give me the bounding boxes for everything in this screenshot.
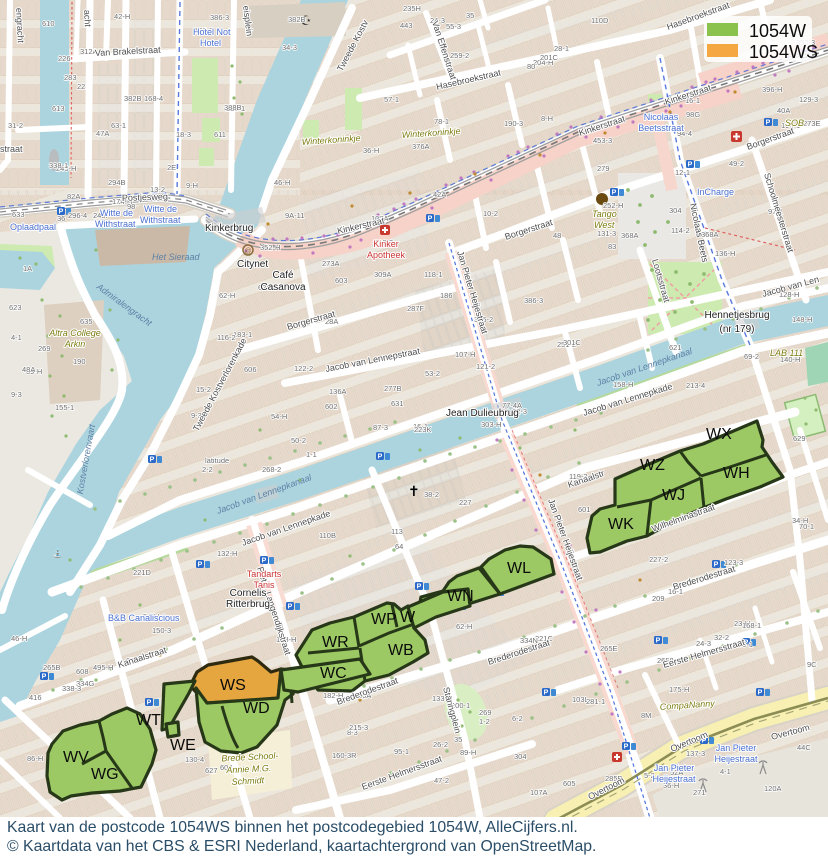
- svg-text:Schmidt: Schmidt: [231, 775, 264, 787]
- svg-text:155-1: 155-1: [55, 403, 74, 412]
- svg-text:WX: WX: [706, 426, 732, 443]
- svg-text:271: 271: [693, 788, 706, 797]
- svg-text:120A: 120A: [764, 784, 782, 793]
- svg-text:107-H: 107-H: [455, 350, 475, 359]
- svg-text:Altra College: Altra College: [48, 328, 101, 338]
- svg-text:279: 279: [597, 164, 610, 173]
- svg-text:627: 627: [205, 766, 218, 775]
- svg-text:Hotel Not: Hotel Not: [193, 27, 231, 37]
- svg-text:168-1: 168-1: [742, 621, 761, 630]
- svg-text:223K: 223K: [414, 425, 432, 434]
- svg-text:190: 190: [73, 357, 86, 366]
- svg-text:34-H: 34-H: [792, 516, 808, 525]
- svg-text:132-H: 132-H: [217, 549, 237, 558]
- svg-text:62-H: 62-H: [456, 622, 472, 631]
- svg-text:82A: 82A: [67, 192, 80, 201]
- svg-text:269: 269: [479, 708, 492, 717]
- svg-text:31-2: 31-2: [8, 121, 23, 130]
- svg-text:98G: 98G: [686, 110, 700, 119]
- svg-text:9A-11: 9A-11: [285, 211, 304, 220]
- svg-text:engracht: engracht: [14, 8, 26, 44]
- svg-text:150-3: 150-3: [152, 626, 171, 635]
- svg-text:Postjesweg: Postjesweg: [122, 191, 168, 203]
- svg-text:227-2: 227-2: [649, 555, 668, 564]
- svg-text:35: 35: [454, 735, 462, 744]
- svg-text:Witte de: Witte de: [144, 204, 177, 214]
- svg-text:396-H: 396-H: [762, 85, 782, 94]
- svg-text:1054WS: 1054WS: [749, 42, 818, 62]
- svg-text:P: P: [656, 638, 661, 645]
- svg-text:53-2: 53-2: [425, 369, 440, 378]
- svg-text:✝: ✝: [408, 483, 420, 499]
- svg-text:4-1: 4-1: [11, 333, 22, 342]
- svg-text:136A: 136A: [329, 387, 347, 396]
- svg-text:Het Sieraad: Het Sieraad: [152, 252, 201, 262]
- svg-text:186: 186: [440, 291, 453, 300]
- svg-text:12-1: 12-1: [675, 168, 690, 177]
- svg-text:P: P: [147, 700, 152, 707]
- svg-text:(nr 179): (nr 179): [719, 324, 754, 335]
- svg-text:601: 601: [578, 505, 591, 514]
- svg-text:57-1: 57-1: [384, 95, 399, 104]
- svg-text:47-2: 47-2: [434, 776, 449, 785]
- svg-text:296-4: 296-4: [68, 211, 87, 220]
- svg-text:W: W: [400, 609, 416, 626]
- svg-text:P: P: [42, 674, 47, 681]
- svg-text:P: P: [624, 744, 629, 751]
- svg-text:87-3: 87-3: [373, 423, 388, 432]
- svg-text:89-H: 89-H: [460, 748, 476, 757]
- svg-text:168-4: 168-4: [144, 94, 163, 103]
- svg-text:Tandarts: Tandarts: [247, 569, 282, 579]
- svg-text:WG: WG: [91, 766, 119, 783]
- svg-text:215-3: 215-3: [349, 723, 368, 732]
- svg-text:West: West: [594, 220, 615, 230]
- svg-text:WP: WP: [371, 611, 397, 628]
- svg-text:388B: 388B: [224, 103, 242, 112]
- svg-text:4-1: 4-1: [720, 767, 731, 776]
- svg-text:32-2: 32-2: [714, 633, 729, 642]
- svg-text:38-2: 38-2: [424, 490, 439, 499]
- svg-text:62-H: 62-H: [219, 291, 235, 300]
- svg-text:LAB 111: LAB 111: [770, 348, 803, 358]
- svg-text:55-3: 55-3: [446, 22, 461, 31]
- svg-text:Withstraat: Withstraat: [140, 215, 181, 225]
- svg-text:Citynet: Citynet: [237, 259, 268, 270]
- svg-text:straat: straat: [0, 144, 23, 154]
- svg-text:36: 36: [57, 214, 65, 223]
- svg-text:P: P: [417, 584, 422, 591]
- svg-text:301C: 301C: [563, 338, 582, 347]
- svg-text:63-1: 63-1: [111, 121, 126, 130]
- svg-text:Witte de: Witte de: [100, 208, 133, 218]
- svg-text:Jan Pieter: Jan Pieter: [654, 763, 695, 773]
- svg-text:114-2: 114-2: [671, 226, 690, 235]
- svg-text:265B: 265B: [43, 663, 61, 672]
- svg-text:Hennetjesbrug: Hennetjesbrug: [704, 310, 769, 321]
- svg-text:603: 603: [335, 276, 348, 285]
- svg-text:WH: WH: [723, 465, 750, 482]
- svg-text:201C: 201C: [540, 53, 559, 62]
- svg-text:Oplaadpaal: Oplaadpaal: [10, 222, 56, 232]
- svg-text:116-2: 116-2: [217, 333, 236, 342]
- svg-text:44C: 44C: [797, 743, 811, 752]
- svg-text:131-3: 131-3: [597, 229, 616, 238]
- svg-text:613: 613: [52, 104, 65, 113]
- svg-text:49-2: 49-2: [729, 159, 744, 168]
- svg-text:Heijestraat: Heijestraat: [652, 774, 696, 784]
- svg-text:WC: WC: [320, 665, 347, 682]
- svg-text:80: 80: [527, 62, 535, 71]
- svg-text:54-H: 54-H: [271, 412, 287, 421]
- svg-text:P: P: [378, 454, 383, 461]
- svg-text:273E: 273E: [803, 119, 821, 128]
- svg-text:129-3: 129-3: [799, 95, 818, 104]
- svg-text:304: 304: [514, 752, 527, 761]
- svg-text:P: P: [612, 190, 617, 197]
- svg-text:P: P: [262, 558, 267, 565]
- svg-text:2-2: 2-2: [202, 465, 213, 474]
- svg-text:Casanova: Casanova: [260, 282, 305, 293]
- svg-text:602: 602: [325, 402, 338, 411]
- svg-text:635: 635: [80, 317, 93, 326]
- svg-text:287F: 287F: [407, 304, 425, 313]
- svg-text:631: 631: [391, 399, 404, 408]
- svg-text:209: 209: [652, 594, 665, 603]
- svg-text:265E: 265E: [600, 644, 618, 653]
- svg-text:382B: 382B: [124, 94, 142, 103]
- svg-text:110B: 110B: [319, 531, 336, 540]
- svg-text:Tango: Tango: [592, 209, 617, 219]
- svg-text:WB: WB: [388, 642, 414, 659]
- svg-text:283: 283: [64, 73, 77, 82]
- svg-text:9-H: 9-H: [186, 181, 198, 190]
- svg-text:122-2: 122-2: [294, 364, 313, 373]
- svg-text:608: 608: [76, 667, 89, 676]
- svg-text:148-H: 148-H: [792, 315, 812, 324]
- svg-text:1-1: 1-1: [306, 450, 317, 459]
- svg-text:48A: 48A: [22, 365, 35, 374]
- svg-text:9C: 9C: [807, 660, 817, 669]
- svg-text:1-2: 1-2: [479, 717, 490, 726]
- svg-text:6-2: 6-2: [512, 714, 523, 723]
- svg-text:226: 226: [58, 54, 71, 63]
- svg-text:338-1: 338-1: [49, 161, 68, 170]
- svg-text:610: 610: [42, 19, 55, 28]
- svg-text:83: 83: [608, 242, 616, 251]
- svg-text:416: 416: [29, 693, 42, 702]
- svg-text:175-H: 175-H: [669, 685, 689, 694]
- svg-text:WV: WV: [63, 749, 89, 766]
- svg-text:28-1: 28-1: [554, 44, 569, 53]
- svg-text:107A: 107A: [530, 788, 548, 797]
- svg-text:623: 623: [9, 303, 22, 312]
- svg-text:36-H: 36-H: [363, 146, 379, 155]
- svg-text:P: P: [766, 120, 771, 127]
- svg-text:227: 227: [459, 498, 472, 507]
- svg-text:386-3: 386-3: [210, 13, 229, 22]
- svg-text:303-H: 303-H: [481, 420, 501, 429]
- svg-text:46-H: 46-H: [11, 634, 27, 643]
- svg-text:Beetsstraat: Beetsstraat: [638, 123, 684, 133]
- svg-text:633: 633: [12, 210, 25, 219]
- svg-text:338-3: 338-3: [62, 684, 81, 693]
- svg-text:Ritterbrug: Ritterbrug: [226, 599, 270, 610]
- svg-text:453-3: 453-3: [593, 136, 612, 145]
- svg-text:WT: WT: [136, 712, 161, 729]
- svg-text:Cornelis: Cornelis: [230, 588, 267, 599]
- svg-text:⛲: ⛲: [52, 547, 63, 559]
- svg-text:Kinker: Kinker: [373, 239, 399, 249]
- svg-text:605: 605: [563, 779, 576, 788]
- svg-text:606: 606: [244, 365, 257, 374]
- svg-text:1A: 1A: [23, 264, 32, 273]
- svg-text:268-2: 268-2: [262, 465, 281, 474]
- svg-text:P: P: [150, 457, 155, 464]
- svg-text:18-3: 18-3: [176, 130, 191, 139]
- svg-text:SOB: SOB: [785, 118, 804, 128]
- svg-text:294B: 294B: [108, 178, 126, 187]
- svg-text:1054W: 1054W: [749, 21, 806, 41]
- svg-text:P: P: [198, 562, 203, 569]
- svg-text:118-1: 118-1: [424, 270, 443, 279]
- svg-text:50-2: 50-2: [291, 436, 306, 445]
- svg-text:352-H: 352-H: [260, 243, 280, 252]
- svg-text:WE: WE: [170, 737, 196, 754]
- svg-text:273A: 273A: [322, 259, 340, 268]
- svg-text:95-1: 95-1: [394, 747, 409, 756]
- svg-text:47A: 47A: [96, 129, 109, 138]
- svg-text:9-3: 9-3: [11, 390, 22, 399]
- svg-text:110D: 110D: [591, 16, 609, 25]
- svg-text:InCharge: InCharge: [697, 187, 734, 197]
- svg-text:WR: WR: [322, 634, 349, 651]
- svg-text:P: P: [758, 690, 763, 697]
- svg-text:P: P: [288, 604, 293, 611]
- svg-text:386-3: 386-3: [524, 296, 543, 305]
- svg-text:136-H: 136-H: [715, 249, 735, 258]
- svg-text:190-3: 190-3: [504, 119, 523, 128]
- svg-text:P: P: [544, 690, 549, 697]
- svg-text:WJ: WJ: [662, 487, 685, 504]
- svg-text:Hotel: Hotel: [200, 38, 221, 48]
- svg-text:42-H: 42-H: [114, 12, 130, 21]
- svg-text:183-1: 183-1: [233, 330, 252, 339]
- svg-text:213-4: 213-4: [686, 381, 705, 390]
- svg-text:69-2: 69-2: [744, 352, 759, 361]
- svg-text:WN: WN: [447, 588, 474, 605]
- svg-text:130-4: 130-4: [185, 755, 204, 764]
- svg-text:Jean Dulieubrug: Jean Dulieubrug: [446, 408, 519, 419]
- svg-text:Kinkerbrug: Kinkerbrug: [205, 223, 253, 234]
- svg-text:368A: 368A: [621, 231, 639, 240]
- svg-text:113: 113: [391, 527, 403, 536]
- svg-text:86-H: 86-H: [27, 754, 43, 763]
- svg-text:10-2: 10-2: [483, 209, 498, 218]
- svg-text:B&B Canaliscious: B&B Canaliscious: [108, 613, 180, 623]
- svg-text:Nicolaas: Nicolaas: [644, 112, 679, 122]
- svg-text:281-1: 281-1: [586, 697, 605, 706]
- svg-text:Café: Café: [272, 270, 294, 281]
- svg-text:121-2: 121-2: [476, 362, 495, 371]
- svg-text:495-H: 495-H: [93, 663, 113, 672]
- svg-text:629: 629: [793, 434, 806, 443]
- svg-text:8M: 8M: [641, 711, 651, 720]
- svg-text:WS: WS: [220, 677, 246, 694]
- svg-text:Apotheek: Apotheek: [367, 250, 406, 260]
- svg-text:34-3: 34-3: [282, 43, 297, 52]
- svg-text:40A: 40A: [777, 106, 790, 115]
- svg-text:@: @: [244, 248, 251, 255]
- svg-text:WL: WL: [507, 560, 531, 577]
- svg-text:WD: WD: [243, 700, 270, 717]
- svg-text:382B: 382B: [288, 15, 306, 24]
- svg-text:235H: 235H: [403, 4, 421, 13]
- svg-text:WZ: WZ: [640, 457, 665, 474]
- svg-text:443: 443: [400, 21, 413, 30]
- svg-text:611: 611: [214, 130, 226, 139]
- svg-text:P: P: [428, 216, 433, 223]
- svg-text:Withstraat: Withstraat: [95, 219, 136, 229]
- svg-text:277B: 277B: [384, 384, 402, 393]
- svg-text:8-H: 8-H: [541, 114, 553, 123]
- svg-text:26-2: 26-2: [433, 740, 448, 749]
- svg-text:309A: 309A: [374, 270, 392, 279]
- svg-text:46-H: 46-H: [274, 178, 290, 187]
- svg-text:78-1: 78-1: [434, 117, 449, 126]
- svg-text:Jan Pieter: Jan Pieter: [716, 743, 757, 753]
- svg-text:269: 269: [38, 344, 51, 353]
- svg-text:22: 22: [77, 82, 85, 91]
- svg-text:160-3R: 160-3R: [332, 751, 357, 760]
- svg-text:48: 48: [553, 231, 561, 240]
- svg-text:WK: WK: [608, 516, 634, 533]
- svg-text:42A: 42A: [433, 190, 446, 199]
- svg-text:Arkin: Arkin: [64, 339, 86, 349]
- svg-text:Heijestraat: Heijestraat: [714, 754, 758, 764]
- svg-text:latitude: latitude: [205, 456, 229, 465]
- svg-text:137-3: 137-3: [686, 749, 705, 758]
- svg-text:2E: 2E: [167, 163, 176, 172]
- svg-text:acht: acht: [82, 10, 93, 28]
- svg-text:35: 35: [466, 11, 474, 20]
- svg-text:221D: 221D: [133, 568, 152, 577]
- svg-text:376A: 376A: [412, 142, 430, 151]
- svg-text:64: 64: [395, 542, 403, 551]
- svg-text:304: 304: [669, 206, 682, 215]
